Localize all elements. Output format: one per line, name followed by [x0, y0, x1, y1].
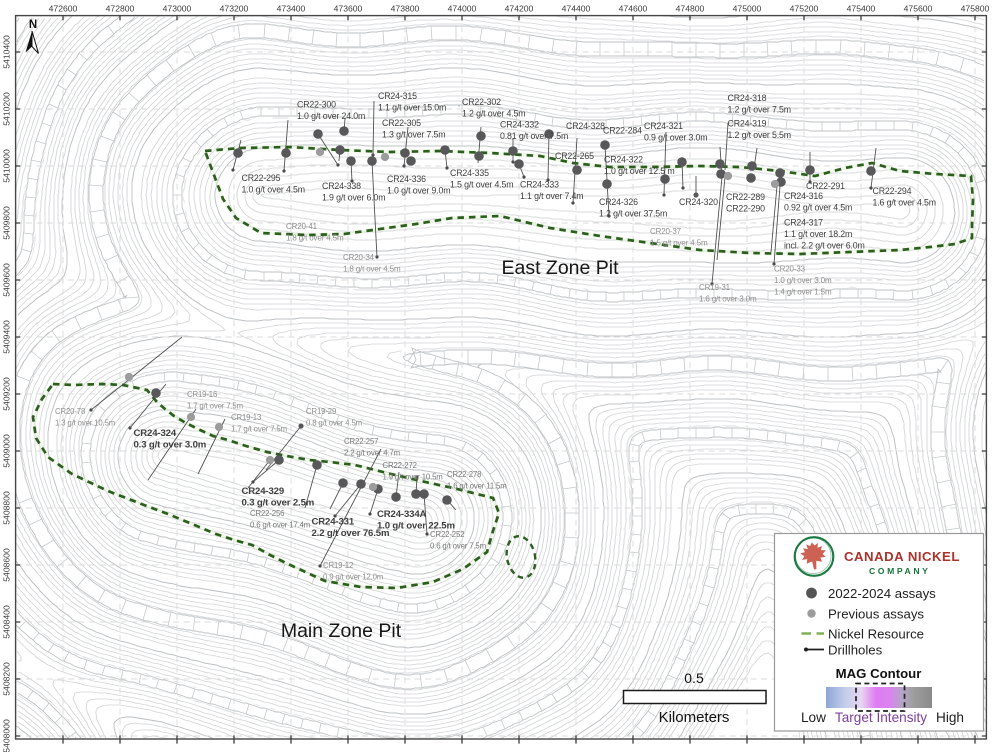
svg-text:CR20-33: CR20-33: [774, 265, 806, 274]
svg-text:1.6 g/t over 4.5m: 1.6 g/t over 4.5m: [873, 198, 936, 208]
svg-text:CR19-16: CR19-16: [187, 390, 217, 399]
svg-text:CR22-302: CR22-302: [462, 97, 501, 107]
svg-text:1.3 g/t over 10.5m: 1.3 g/t over 10.5m: [55, 419, 115, 428]
svg-text:0.92 g/t over 4.5m: 0.92 g/t over 4.5m: [784, 203, 852, 213]
svg-text:CR20-34: CR20-34: [343, 253, 375, 262]
svg-text:1.1 g/t over 15.0m: 1.1 g/t over 15.0m: [378, 103, 446, 113]
svg-text:CR24-316: CR24-316: [784, 191, 823, 201]
svg-text:CR20-41: CR20-41: [286, 222, 318, 231]
svg-text:CR22-284: CR22-284: [603, 126, 642, 136]
svg-text:High: High: [936, 710, 964, 725]
svg-text:1.7 g/t over 7.5m: 1.7 g/t over 7.5m: [231, 425, 287, 434]
svg-text:Nickel Resource: Nickel Resource: [828, 627, 924, 642]
svg-text:CR24-320: CR24-320: [679, 197, 718, 207]
svg-text:CR24-319: CR24-319: [728, 119, 767, 129]
svg-text:CR24-331: CR24-331: [312, 517, 355, 528]
svg-text:MAG Contour: MAG Contour: [836, 666, 922, 681]
svg-text:2022-2024 assays: 2022-2024 assays: [828, 586, 936, 601]
svg-text:CR22-256: CR22-256: [250, 509, 284, 518]
svg-text:CR24-322: CR24-322: [604, 155, 643, 165]
svg-text:1.5 g/t over 4.5m: 1.5 g/t over 4.5m: [450, 180, 513, 190]
svg-text:1.4 g/t over 1.5m: 1.4 g/t over 1.5m: [774, 288, 832, 297]
svg-text:5408400: 5408400: [2, 605, 12, 639]
svg-text:N: N: [29, 19, 37, 31]
svg-text:CR22-295: CR22-295: [242, 173, 281, 183]
svg-text:474600: 474600: [619, 4, 648, 14]
svg-text:5408800: 5408800: [2, 491, 12, 525]
svg-text:475400: 475400: [847, 4, 876, 14]
svg-text:5410400: 5410400: [2, 35, 12, 69]
svg-text:473800: 473800: [391, 4, 420, 14]
svg-text:474400: 474400: [562, 4, 591, 14]
svg-text:CR24-332: CR24-332: [500, 120, 539, 130]
svg-text:0.6 g/t over 17.4m: 0.6 g/t over 17.4m: [250, 521, 310, 530]
svg-text:1.2 g/t over 37.5m: 1.2 g/t over 37.5m: [599, 209, 667, 219]
svg-text:CR24-315: CR24-315: [378, 91, 417, 101]
svg-text:0.9 g/t over 3.0m: 0.9 g/t over 3.0m: [644, 133, 707, 143]
svg-text:474800: 474800: [676, 4, 705, 14]
svg-text:5409200: 5409200: [2, 377, 12, 411]
svg-text:CR24-336: CR24-336: [387, 174, 426, 184]
svg-text:CANADA NICKEL: CANADA NICKEL: [844, 549, 960, 564]
svg-text:1.5 g/t over 4.5m: 1.5 g/t over 4.5m: [650, 239, 708, 248]
svg-text:0.8 g/t over 4.5m: 0.8 g/t over 4.5m: [306, 419, 362, 428]
svg-text:5409000: 5409000: [2, 434, 12, 468]
svg-text:Low: Low: [801, 710, 826, 725]
svg-text:1.0 g/t over 24.0m: 1.0 g/t over 24.0m: [297, 111, 365, 121]
svg-text:1.2 g/t over 5.5m: 1.2 g/t over 5.5m: [728, 130, 791, 140]
svg-text:Kilometers: Kilometers: [659, 709, 730, 726]
svg-text:475800: 475800: [961, 4, 990, 14]
svg-text:Main Zone Pit: Main Zone Pit: [281, 620, 402, 642]
svg-text:5408000: 5408000: [2, 719, 12, 752]
svg-text:0.6 g/t over 7.5m: 0.6 g/t over 7.5m: [430, 542, 486, 551]
svg-text:CR24-317: CR24-317: [784, 218, 823, 228]
svg-text:CR24-334A: CR24-334A: [377, 509, 427, 520]
svg-text:474000: 474000: [448, 4, 477, 14]
svg-text:1.2 g/t over 4.5m: 1.2 g/t over 4.5m: [462, 109, 525, 119]
svg-text:CR22-252: CR22-252: [430, 530, 464, 539]
svg-text:1.7 g/t over 7.5m: 1.7 g/t over 7.5m: [187, 402, 243, 411]
svg-text:473600: 473600: [334, 4, 363, 14]
svg-text:CR19-12: CR19-12: [323, 561, 353, 570]
svg-text:CR22-278: CR22-278: [447, 470, 481, 479]
svg-text:5408600: 5408600: [2, 548, 12, 582]
svg-text:5409600: 5409600: [2, 263, 12, 297]
svg-text:CR24-328: CR24-328: [566, 121, 605, 131]
svg-text:CR20-78: CR20-78: [55, 407, 85, 416]
svg-text:CR22-300: CR22-300: [297, 100, 336, 110]
svg-text:East Zone Pit: East Zone Pit: [501, 257, 619, 279]
svg-text:CR19-31: CR19-31: [699, 283, 731, 292]
svg-text:1.1 g/t over 18.2m: 1.1 g/t over 18.2m: [784, 229, 852, 239]
svg-text:CR19-29: CR19-29: [306, 407, 336, 416]
svg-text:1.8 g/t over 4.5m: 1.8 g/t over 4.5m: [343, 265, 401, 274]
svg-text:CR24-324: CR24-324: [134, 428, 177, 439]
svg-text:1.0 g/t over 12.5 m: 1.0 g/t over 12.5 m: [604, 166, 675, 176]
svg-text:Previous assays: Previous assays: [828, 607, 924, 622]
svg-text:5410000: 5410000: [2, 149, 12, 183]
svg-text:473400: 473400: [277, 4, 306, 14]
svg-text:0.3 g/t over 3.0m: 0.3 g/t over 3.0m: [134, 440, 207, 451]
svg-text:473000: 473000: [163, 4, 192, 14]
svg-text:5409400: 5409400: [2, 320, 12, 354]
svg-text:CR22-289: CR22-289: [726, 192, 765, 202]
svg-text:CR24-318: CR24-318: [728, 93, 767, 103]
svg-text:CR24-335: CR24-335: [450, 168, 489, 178]
svg-text:1.8 g/t over 4.5m: 1.8 g/t over 4.5m: [286, 234, 344, 243]
svg-text:475000: 475000: [733, 4, 762, 14]
svg-text:1.9 g/t over 6.0m: 1.9 g/t over 6.0m: [322, 193, 385, 203]
svg-text:1.9 g/t over 10.5m: 1.9 g/t over 10.5m: [383, 473, 443, 482]
svg-text:1.1 g/t over 7.4m: 1.1 g/t over 7.4m: [520, 191, 583, 201]
svg-text:CR22-291: CR22-291: [806, 181, 845, 191]
svg-text:CR24-338: CR24-338: [322, 181, 361, 191]
svg-text:incl. 2.2 g/t over 6.0m: incl. 2.2 g/t over 6.0m: [784, 241, 865, 251]
svg-text:CR24-333: CR24-333: [520, 180, 559, 190]
svg-text:CR19-13: CR19-13: [231, 413, 261, 422]
svg-text:1.0 g/t over 9.0m: 1.0 g/t over 9.0m: [387, 186, 450, 196]
svg-text:472800: 472800: [106, 4, 135, 14]
svg-text:CR22-272: CR22-272: [383, 461, 417, 470]
svg-text:1.0 g/t over 3.0m: 1.0 g/t over 3.0m: [774, 276, 832, 285]
svg-text:CR20-37: CR20-37: [650, 227, 682, 236]
svg-text:CR22-305: CR22-305: [382, 118, 421, 128]
svg-text:CR24-329: CR24-329: [242, 486, 285, 497]
svg-text:475200: 475200: [790, 4, 819, 14]
svg-text:0.81 g/t over 7.5m: 0.81 g/t over 7.5m: [500, 131, 568, 141]
svg-text:5410200: 5410200: [2, 92, 12, 126]
svg-text:Drillholes: Drillholes: [828, 643, 883, 658]
svg-text:1.2 g/t over 7.5m: 1.2 g/t over 7.5m: [728, 105, 791, 115]
svg-text:0.5: 0.5: [684, 670, 704, 686]
svg-text:CR22-290: CR22-290: [726, 204, 765, 214]
svg-text:474200: 474200: [505, 4, 534, 14]
svg-text:CR22-265: CR22-265: [555, 151, 594, 161]
svg-text:CR24-326: CR24-326: [599, 197, 638, 207]
svg-text:1.6 g/t over 11.5m: 1.6 g/t over 11.5m: [447, 482, 507, 491]
svg-text:1.6 g/t over 3.0m: 1.6 g/t over 3.0m: [699, 295, 757, 304]
svg-text:CR22-257: CR22-257: [344, 437, 378, 446]
svg-text:2.2 g/t over 4.7m: 2.2 g/t over 4.7m: [344, 449, 400, 458]
svg-text:5408200: 5408200: [2, 662, 12, 696]
svg-text:1.0 g/t over 4.5m: 1.0 g/t over 4.5m: [242, 185, 305, 195]
svg-text:1.3 g/t over 7.5m: 1.3 g/t over 7.5m: [382, 130, 445, 140]
svg-text:0.3 g/t over 2.5m: 0.3 g/t over 2.5m: [242, 498, 315, 509]
svg-text:475600: 475600: [904, 4, 933, 14]
svg-text:CR24-321: CR24-321: [644, 121, 683, 131]
svg-text:5409800: 5409800: [2, 206, 12, 240]
svg-text:COMPANY: COMPANY: [869, 566, 931, 576]
svg-text:CR22-294: CR22-294: [873, 186, 912, 196]
svg-text:472600: 472600: [49, 4, 78, 14]
svg-text:Target Intensity: Target Intensity: [835, 710, 927, 725]
svg-text:473200: 473200: [220, 4, 249, 14]
svg-text:0.9 g/t over 12.0m: 0.9 g/t over 12.0m: [323, 573, 383, 582]
